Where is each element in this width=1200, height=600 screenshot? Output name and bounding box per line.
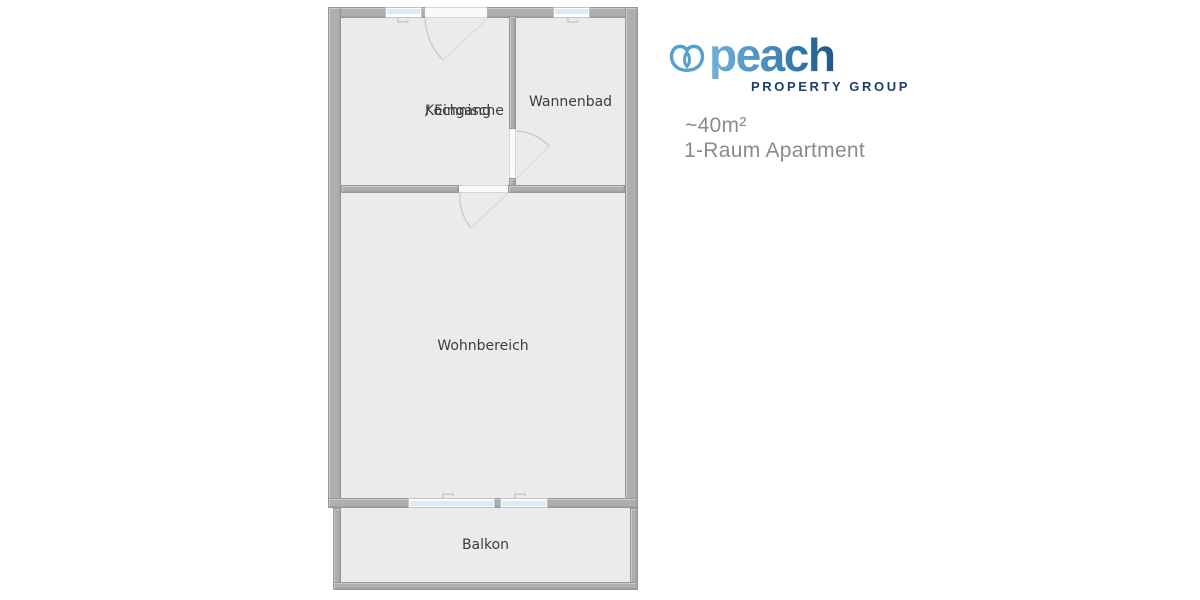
peach-logo-icon bbox=[668, 40, 706, 78]
window-glass bbox=[502, 501, 546, 506]
door-opening-living bbox=[459, 185, 508, 193]
room-label-balkon: Balkon bbox=[462, 536, 509, 554]
wall-left bbox=[328, 7, 341, 508]
door-opening-bath bbox=[509, 129, 516, 178]
window-wannenbad bbox=[553, 7, 590, 18]
window-balcony-door bbox=[408, 498, 495, 508]
room-label-wannenbad: Wannenbad bbox=[529, 93, 612, 111]
wall-middle-right bbox=[508, 185, 625, 193]
wall-balcony-right bbox=[630, 508, 638, 590]
apartment-type: 1-Raum Apartment bbox=[684, 139, 865, 163]
room-balkon: Balkon bbox=[341, 508, 630, 582]
apartment-area: ~40m² bbox=[685, 114, 747, 138]
room-wannenbad: Wannenbad bbox=[516, 18, 625, 185]
window-glass bbox=[555, 9, 588, 14]
page: Kochnische / Eingang Wannenbad Wohnberei… bbox=[0, 0, 1200, 600]
floorplan: Kochnische / Eingang Wannenbad Wohnberei… bbox=[328, 5, 638, 592]
room-kochnische-eingang: Kochnische / Eingang bbox=[341, 18, 509, 185]
door-opening-entry bbox=[425, 7, 487, 18]
room-wohnbereich: Wohnbereich bbox=[341, 193, 625, 498]
window-wohnbereich bbox=[500, 498, 548, 508]
wall-right bbox=[625, 7, 638, 508]
wall-middle-left bbox=[341, 185, 459, 193]
room-label-wohnbereich: Wohnbereich bbox=[437, 337, 528, 355]
logo-tagline: PROPERTY GROUP bbox=[751, 79, 910, 94]
wall-balcony-bottom bbox=[333, 582, 638, 590]
window-glass bbox=[410, 501, 493, 506]
wall-divider-upper bbox=[509, 16, 516, 129]
window-kochnische bbox=[385, 7, 422, 18]
window-glass bbox=[387, 9, 420, 14]
logo-wordmark: peach bbox=[709, 31, 834, 79]
wall-balcony-left bbox=[333, 508, 341, 590]
